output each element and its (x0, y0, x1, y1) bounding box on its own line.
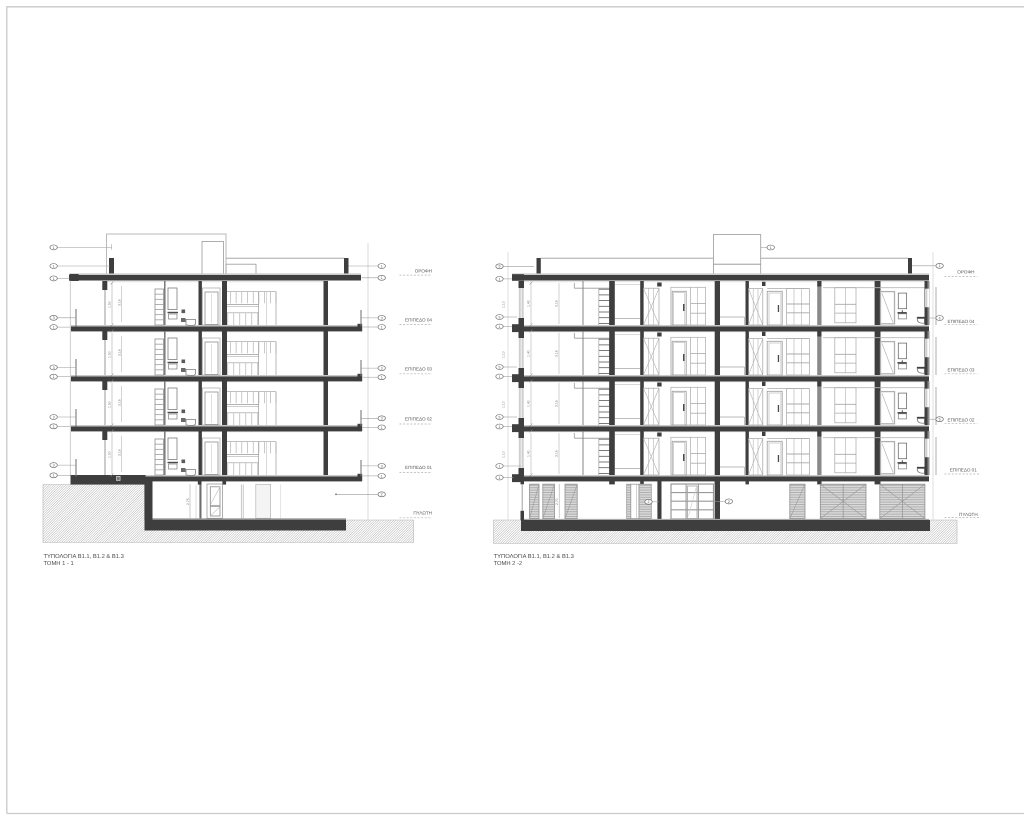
svg-text:1: 1 (381, 325, 383, 329)
svg-text:1.50: 1.50 (108, 301, 112, 308)
svg-text:1: 1 (498, 325, 500, 329)
svg-text:1: 1 (498, 277, 500, 281)
svg-text:1: 1 (381, 474, 383, 478)
svg-text:1: 1 (498, 375, 500, 379)
svg-text:3: 3 (53, 463, 55, 467)
svg-text:2: 2 (381, 493, 383, 497)
svg-text:3: 3 (381, 366, 383, 370)
svg-text:5: 5 (498, 365, 500, 369)
svg-text:3.16: 3.16 (118, 299, 122, 306)
svg-text:1.40: 1.40 (527, 350, 531, 357)
svg-text:1: 1 (53, 246, 55, 250)
svg-text:5: 5 (939, 418, 941, 422)
svg-text:1: 1 (939, 264, 941, 268)
svg-text:ΤΟΜΗ 2 -2: ΤΟΜΗ 2 -2 (494, 560, 523, 567)
svg-text:5: 5 (498, 315, 500, 319)
svg-text:3: 3 (381, 464, 383, 468)
svg-text:1: 1 (53, 264, 55, 268)
svg-text:1: 1 (381, 264, 383, 268)
svg-text:3.16: 3.16 (118, 349, 122, 356)
svg-text:3: 3 (53, 415, 55, 419)
svg-text:ΕΠΙΠΕΔΟ 04: ΕΠΙΠΕΔΟ 04 (405, 317, 432, 322)
svg-text:3.16: 3.16 (118, 449, 122, 456)
svg-text:3.16: 3.16 (118, 399, 122, 406)
svg-text:1: 1 (53, 425, 55, 429)
svg-text:ΕΠΙΠΕΔΟ 03: ΕΠΙΠΕΔΟ 03 (405, 367, 432, 372)
svg-text:1.10: 1.10 (502, 351, 506, 358)
svg-text:1: 1 (381, 426, 383, 430)
svg-text:1: 1 (498, 425, 500, 429)
svg-text:2: 2 (647, 500, 649, 504)
svg-text:ΤΥΠΟΛΟΓΙΑ B1.1, B1.2 & B1.3: ΤΥΠΟΛΟΓΙΑ B1.1, B1.2 & B1.3 (44, 553, 124, 560)
svg-text:1.40: 1.40 (527, 400, 531, 407)
svg-text:1.10: 1.10 (502, 401, 506, 408)
svg-text:ΕΠΙΠΕΔΟ 04: ΕΠΙΠΕΔΟ 04 (948, 319, 975, 324)
svg-text:1: 1 (53, 277, 55, 281)
svg-text:ΟΡΟΦΗ: ΟΡΟΦΗ (415, 268, 432, 273)
svg-text:ΕΠΙΠΕΔΟ 01: ΕΠΙΠΕΔΟ 01 (950, 468, 977, 473)
svg-text:5: 5 (939, 316, 941, 320)
svg-text:3: 3 (381, 316, 383, 320)
svg-text:1.10: 1.10 (502, 451, 506, 458)
svg-text:1: 1 (498, 476, 500, 480)
svg-text:ΕΠΙΠΕΔΟ 01: ΕΠΙΠΕΔΟ 01 (405, 465, 432, 470)
svg-text:1.40: 1.40 (527, 450, 531, 457)
svg-text:5: 5 (498, 415, 500, 419)
svg-text:3: 3 (53, 366, 55, 370)
svg-text:3: 3 (53, 316, 55, 320)
svg-text:2: 2 (728, 500, 730, 504)
svg-text:1: 1 (770, 246, 772, 250)
svg-text:ΤΟΜΗ 1 - 1: ΤΟΜΗ 1 - 1 (44, 560, 74, 567)
svg-text:3.16: 3.16 (555, 400, 559, 407)
svg-text:1.50: 1.50 (108, 401, 112, 408)
svg-text:ΠΥΛΩΤΗ: ΠΥΛΩΤΗ (959, 512, 978, 517)
svg-text:ΕΠΙΠΕΔΟ 03: ΕΠΙΠΕΔΟ 03 (948, 368, 975, 373)
svg-text:3: 3 (381, 417, 383, 421)
svg-text:3.16: 3.16 (555, 350, 559, 357)
svg-text:1: 1 (53, 474, 55, 478)
svg-text:1.50: 1.50 (108, 351, 112, 358)
svg-text:1: 1 (498, 464, 500, 468)
svg-text:ΤΥΠΟΛΟΓΙΑ B1.1, B1.2 & B1.3: ΤΥΠΟΛΟΓΙΑ B1.1, B1.2 & B1.3 (494, 553, 574, 560)
svg-text:1: 1 (381, 376, 383, 380)
svg-text:1.40: 1.40 (527, 300, 531, 307)
svg-text:1: 1 (53, 375, 55, 379)
svg-text:1.50: 1.50 (108, 451, 112, 458)
svg-text:ΕΠΙΠΕΔΟ 02: ΕΠΙΠΕΔΟ 02 (948, 417, 975, 422)
svg-text:ΕΠΙΠΕΔΟ 02: ΕΠΙΠΕΔΟ 02 (405, 417, 432, 422)
svg-text:2.75: 2.75 (186, 498, 190, 505)
svg-text:1.10: 1.10 (502, 301, 506, 308)
svg-text:5: 5 (498, 265, 500, 269)
svg-text:3.16: 3.16 (555, 300, 559, 307)
svg-text:1: 1 (53, 325, 55, 329)
svg-text:ΟΡΟΦΗ: ΟΡΟΦΗ (957, 269, 974, 274)
svg-text:ΠΥΛΩΤΗ: ΠΥΛΩΤΗ (413, 510, 432, 515)
svg-text:1: 1 (381, 276, 383, 280)
svg-text:3.16: 3.16 (555, 450, 559, 457)
svg-text:2.70: 2.70 (555, 498, 559, 505)
